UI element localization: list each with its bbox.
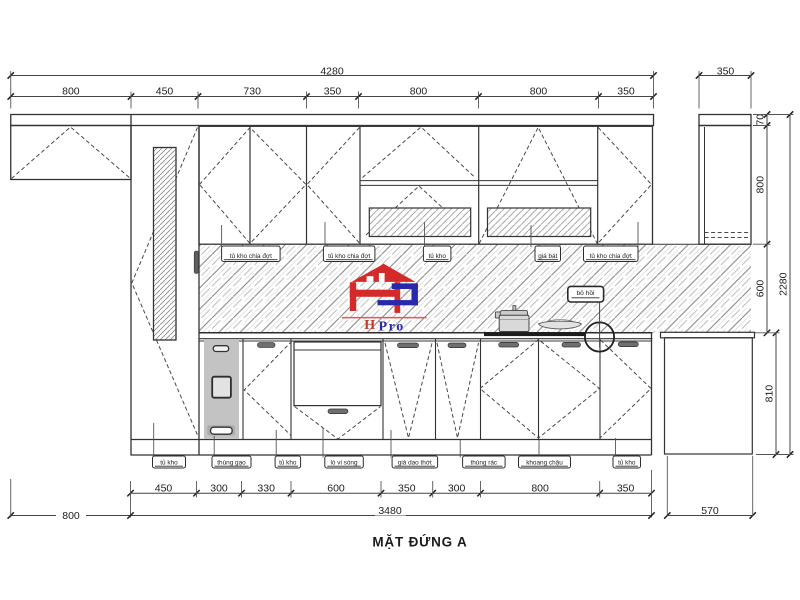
svg-text:khoang chậu: khoang chậu: [526, 460, 563, 467]
svg-text:800: 800: [755, 176, 767, 194]
svg-text:thùng rác: thùng rác: [470, 460, 497, 467]
svg-text:450: 450: [156, 86, 174, 98]
svg-text:70: 70: [755, 114, 767, 126]
svg-text:tủ kho chia đợt: tủ kho chia đợt: [328, 252, 370, 260]
svg-text:tủ kho: tủ kho: [160, 459, 178, 467]
svg-text:2280: 2280: [778, 272, 790, 296]
svg-text:800: 800: [62, 510, 80, 522]
svg-text:H: H: [364, 318, 375, 333]
svg-text:350: 350: [617, 86, 635, 98]
svg-text:570: 570: [701, 505, 719, 517]
svg-text:600: 600: [327, 482, 345, 494]
svg-text:tủ kho: tủ kho: [279, 459, 297, 467]
svg-text:350: 350: [324, 86, 342, 98]
svg-text:800: 800: [531, 482, 549, 494]
svg-text:300: 300: [448, 482, 466, 494]
svg-text:tủ kho chia đợt: tủ kho chia đợt: [590, 252, 632, 260]
svg-text:4280: 4280: [320, 65, 344, 77]
svg-text:600: 600: [755, 280, 767, 298]
svg-text:giá bát: giá bát: [538, 253, 557, 260]
svg-text:330: 330: [257, 482, 275, 494]
svg-text:lò vi sóng: lò vi sóng: [331, 460, 358, 467]
svg-text:tủ kho chia đợt: tủ kho chia đợt: [230, 252, 272, 260]
svg-text:MẶT ĐỨNG A: MẶT ĐỨNG A: [372, 535, 467, 550]
svg-text:350: 350: [717, 65, 735, 77]
svg-text:800: 800: [530, 86, 548, 98]
svg-text:tủ kho: tủ kho: [618, 459, 636, 467]
svg-text:3480: 3480: [378, 505, 402, 517]
svg-text:800: 800: [410, 86, 428, 98]
svg-text:giá dao thớt: giá dao thớt: [398, 460, 432, 467]
svg-text:800: 800: [62, 86, 80, 98]
svg-text:thùng gạo: thùng gạo: [217, 460, 246, 467]
svg-text:350: 350: [617, 482, 635, 494]
svg-text:730: 730: [243, 86, 261, 98]
svg-text:810: 810: [764, 385, 776, 403]
svg-text:bỏ hồi: bỏ hồi: [577, 288, 596, 297]
svg-text:Pro: Pro: [379, 320, 405, 335]
svg-text:tủ kho: tủ kho: [428, 252, 446, 260]
svg-text:300: 300: [210, 482, 228, 494]
svg-text:350: 350: [398, 482, 416, 494]
svg-text:450: 450: [155, 482, 173, 494]
